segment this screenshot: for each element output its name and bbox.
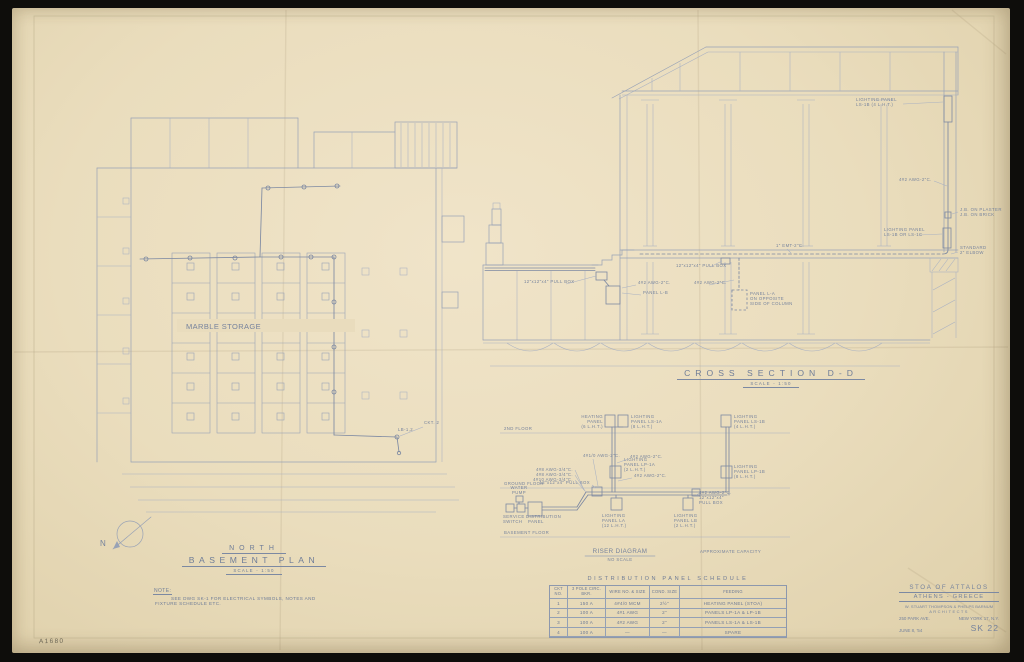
label-pullbox-left: 12"x12"x4" PULL BOX (524, 279, 574, 284)
architect-firm: W. STUART THOMPSON & PHELPS BARNUM (899, 604, 999, 609)
basement-plan: CKT. 2 LB-1,2 MARBLE STORAGE N (97, 118, 464, 549)
label-panel-top-2: LS-1B (4 L.H.T.) (856, 102, 893, 107)
label-feeder-mid: 4#2 AWG-2"C. (694, 280, 727, 285)
plan-panel-label: LB-1,2 (398, 427, 413, 432)
label-ls1a-3: (8 L.H.T.) (631, 424, 653, 429)
table-cell: PANELS LS-1A & LS-1B (680, 618, 786, 628)
project-name: STOA OF ATTALOS (899, 584, 999, 593)
label-branch-3: 4#10 AWG-3/4"C. (533, 477, 573, 482)
scanned-drawing-sheet: CKT. 2 LB-1,2 MARBLE STORAGE N (0, 0, 1024, 662)
plan-storage-racks (172, 253, 407, 433)
panel-lb-riser-symbol (683, 498, 693, 510)
table-cell: 4#4/0 MCM (606, 599, 650, 609)
heating-panel-symbol (605, 415, 615, 427)
panel-la-riser-symbol (611, 498, 622, 510)
address-street: 250 PARK AVE. (899, 616, 930, 621)
label-panel-la-3: SIDE OF COLUMN (750, 301, 793, 306)
label-panel-wall-2: LS-1B OR LS-1C (884, 232, 923, 237)
plan-title-line1: NORTH (222, 545, 286, 554)
panel-ls1a-symbol (618, 415, 628, 427)
label-elbow-2: 2" ELBOW (960, 250, 984, 255)
north-arrow-head (113, 541, 120, 549)
panel-la-symbol (732, 290, 747, 310)
sheet-number: SK 22 (971, 623, 999, 633)
section-title-text: CROSS SECTION D-D (677, 368, 865, 380)
plan-title-scale: SCALE - 1:50 (226, 568, 281, 575)
label-riser-feeder-mid2: 4#2 AWG-2"C. (634, 473, 667, 478)
panel-ls1b-symbol (721, 415, 731, 427)
water-pump-symbol (516, 496, 523, 502)
table-cell: 1 (550, 599, 568, 609)
schedule-header: FEEDING (680, 586, 786, 599)
riser-title: RISER DIAGRAM NO SCALE APPROXIMATE CAPAC… (585, 548, 761, 562)
table-cell: 100 A (568, 628, 606, 638)
plan-note: NOTE: SEE DWG SK-1 FOR ELECTRICAL SYMBOL… (153, 588, 373, 606)
schedule-header: 3 POLE CIRC. BKR. (568, 586, 606, 599)
plan-ckt-label: CKT. 2 (424, 420, 440, 425)
cross-section: LIGHTING PANEL LS-1B (4 L.H.T.) 4#2 AWG-… (483, 47, 1002, 366)
riser-scale-text: NO SCALE (608, 557, 633, 562)
north-arrow: N (100, 517, 151, 549)
label-service-2: SWITCH (503, 519, 522, 524)
label-pump-2: PUMP (512, 490, 526, 495)
riser-note-text: APPROXIMATE CAPACITY (700, 549, 761, 554)
label-panel-lb: PANEL L-B (643, 290, 668, 295)
table-cell: 100 A (568, 609, 606, 619)
firm-address: 250 PARK AVE. NEW YORK 17, N.Y. (899, 616, 999, 621)
archive-reference-number: A1680 (39, 638, 65, 646)
table-cell: 4 (550, 628, 568, 638)
table-cell: 100 A (568, 618, 606, 628)
label-feeder-main: 4#1/0 AWG-2"C. (583, 453, 620, 458)
label-feeder-left: 4#2 AWG-2"C. (638, 280, 671, 285)
label-lb-3: (2 L.H.T.) (674, 523, 696, 528)
table-cell: 4#2 AWG (606, 618, 650, 628)
table-cell: — (606, 628, 650, 638)
label-riser-feeder-mid: 4#2 AWG-2"C. (630, 454, 663, 459)
room-name-label: MARBLE STORAGE (186, 322, 261, 331)
section-roof (612, 47, 958, 99)
label-dist-2: PANEL (528, 519, 544, 524)
note-line2: FIXTURE SCHEDULE ETC. (155, 601, 373, 606)
section-wiring (485, 96, 952, 310)
table-cell: 2" (650, 609, 680, 619)
table-cell: — (650, 628, 680, 638)
table-cell: 2" (650, 618, 680, 628)
label-pullbox-right-3: PULL BOX (699, 500, 723, 505)
panel-lb-symbol (606, 286, 620, 304)
label-la-3: (12 L.H.T.) (602, 523, 627, 528)
pull-box-left-symbol (596, 272, 607, 280)
north-letter: N (100, 539, 106, 548)
title-block-footer: JUNE 8, '54 SK 22 (899, 623, 999, 633)
cross-section-title: CROSS SECTION D-D SCALE - 1:50 (655, 368, 887, 388)
schedule-header: COND. SIZE (650, 586, 680, 599)
plan-walls (97, 118, 464, 512)
drawing-date: JUNE 8, '54 (899, 628, 922, 633)
table-cell: SPARE (680, 628, 786, 638)
address-city: NEW YORK 17, N.Y. (959, 616, 999, 621)
label-jb-brick: J.B. ON BRICK (960, 212, 995, 217)
architect-role: ARCHITECTS (899, 609, 999, 614)
service-switch-symbol-1 (506, 504, 514, 512)
riser-diagram: 2ND FLOOR GROUND FLOOR BASEMENT FLOOR (500, 414, 790, 562)
label-emt: 1" EMT-2"C. (776, 243, 804, 248)
table-cell: 4#1 AWG (606, 609, 650, 619)
schedule-header: WIRE NO. & SIZE (606, 586, 650, 599)
schedule-header: CKT NO. (550, 586, 568, 599)
label-lp1a-3: (2 L.H.T.) (624, 467, 646, 472)
label-basement-floor: BASEMENT FLOOR (504, 530, 549, 535)
note-heading: NOTE: (153, 588, 172, 595)
table-cell: 2 (550, 609, 568, 619)
lighting-panel-top-symbol (944, 96, 952, 122)
schedule-title: DISTRIBUTION PANEL SCHEDULE (549, 576, 787, 585)
title-block: STOA OF ATTALOS ATHENS - GREECE W. STUAR… (899, 584, 999, 633)
label-2nd-floor: 2ND FLOOR (504, 426, 532, 431)
label-lp1b-3: (8 L.H.T.) (734, 474, 756, 479)
table-cell: 2½" (650, 599, 680, 609)
panel-schedule-table: DISTRIBUTION PANEL SCHEDULE CKT NO. 3 PO… (549, 576, 787, 638)
table-cell: 3 (550, 618, 568, 628)
plan-title-line2: BASEMENT PLAN (182, 555, 326, 567)
label-ls1b-3: (4 L.H.T.) (734, 424, 756, 429)
basement-plan-title: NORTH BASEMENT PLAN SCALE - 1:50 (148, 545, 360, 575)
panel-lp1b-symbol (721, 466, 732, 478)
project-location: ATHENS - GREECE (899, 594, 999, 602)
label-pullbox-mid: 12"x12"x4" PULL BOX (676, 263, 726, 268)
table-cell: PANELS LP-1A & LP-1B (680, 609, 786, 619)
label-feeder-right: 4#2 AWG-2"C. (899, 177, 932, 182)
plan-room-label: MARBLE STORAGE (177, 319, 355, 332)
service-switch-symbol-2 (517, 504, 525, 512)
section-scale-text: SCALE - 1:50 (743, 381, 798, 388)
label-heating-3: (6 L.H.T.) (581, 424, 603, 429)
table-cell: HEATING PANEL (STOA) (680, 599, 786, 609)
riser-title-text: RISER DIAGRAM (593, 548, 648, 555)
schedule-grid: CKT NO. 3 POLE CIRC. BKR. WIRE NO. & SIZ… (549, 585, 787, 638)
table-cell: 150 A (568, 599, 606, 609)
